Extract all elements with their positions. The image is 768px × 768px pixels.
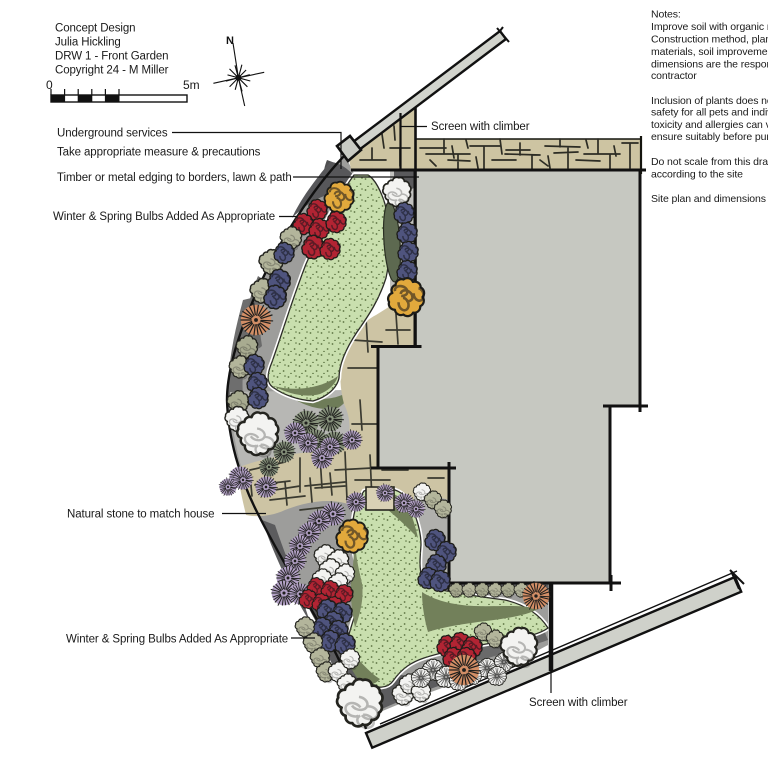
svg-text:Copyright 24 - M Miller: Copyright 24 - M Miller — [55, 65, 169, 77]
svg-text:safety for all pets and indivi: safety for all pets and individuals as p… — [651, 107, 768, 119]
svg-text:5m: 5m — [183, 78, 200, 92]
svg-text:Timber or metal edging to bord: Timber or metal edging to borders, lawn … — [57, 172, 292, 184]
svg-text:contractor: contractor — [651, 70, 697, 82]
svg-text:Natural stone to match house: Natural stone to match house — [67, 509, 214, 521]
svg-text:DRW 1 - Front Garden: DRW 1 - Front Garden — [55, 51, 168, 63]
svg-text:Screen with climber: Screen with climber — [529, 697, 628, 709]
svg-text:dimensions are the responsibil: dimensions are the responsibility of the — [651, 59, 768, 71]
svg-text:Winter & Spring Bulbs Added As: Winter & Spring Bulbs Added As Appropria… — [53, 211, 275, 223]
svg-text:Screen with climber: Screen with climber — [431, 121, 530, 133]
svg-text:Site plan and dimensions provi: Site plan and dimensions provided by cli… — [651, 193, 768, 205]
svg-text:Notes:: Notes: — [651, 9, 681, 21]
svg-text:N: N — [226, 35, 234, 47]
svg-text:Inclusion of plants does not g: Inclusion of plants does not guarantee t… — [651, 95, 768, 107]
svg-text:Improve soil with organic matt: Improve soil with organic matter as requ… — [651, 21, 768, 33]
svg-text:materials, soil improvements a: materials, soil improvements and all — [651, 46, 768, 58]
svg-text:Take appropriate measure & pre: Take appropriate measure & precautions — [57, 147, 261, 159]
svg-text:Underground services: Underground services — [57, 128, 168, 140]
svg-text:Construction method, planting: Construction method, planting style and — [651, 33, 768, 45]
svg-text:according to the site: according to the site — [651, 168, 743, 180]
svg-text:ensure suitably before purchas: ensure suitably before purchasing — [651, 131, 768, 143]
svg-text:Do not scale from this drawing: Do not scale from this drawing, work — [651, 156, 768, 168]
svg-text:toxicity and allergies can var: toxicity and allergies can vary, please — [651, 119, 768, 131]
svg-text:0: 0 — [46, 78, 53, 92]
svg-text:Julia Hickling: Julia Hickling — [55, 37, 121, 49]
svg-text:Winter & Spring Bulbs Added As: Winter & Spring Bulbs Added As Appropria… — [66, 634, 288, 646]
svg-text:Concept Design: Concept Design — [55, 23, 135, 35]
